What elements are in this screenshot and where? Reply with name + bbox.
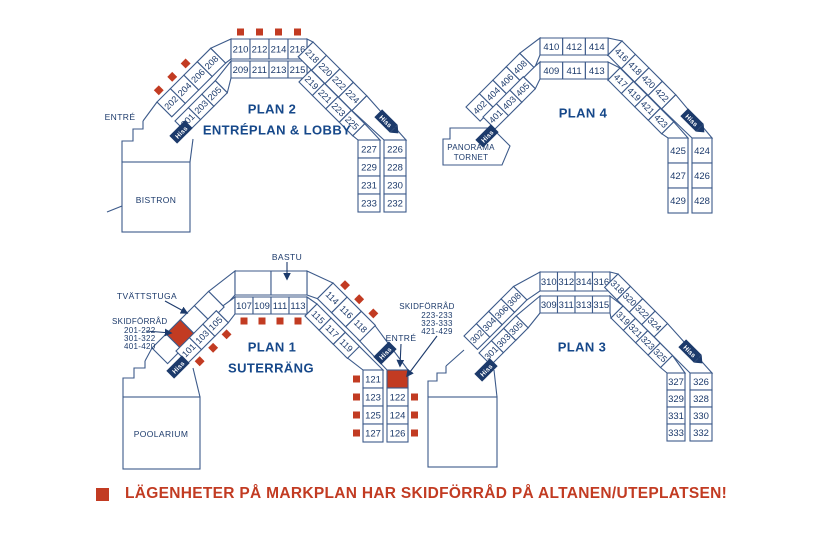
wall-line xyxy=(446,350,464,366)
plan4-group: 4104124144094114134024044064084014034054… xyxy=(443,38,712,213)
panorama-label: TORNET xyxy=(454,153,489,162)
ski-storage-marker xyxy=(340,280,350,290)
unit-number: 232 xyxy=(387,198,403,209)
unit-number: 333 xyxy=(668,428,684,439)
ski-storage-marker xyxy=(411,430,418,437)
unit-number: 409 xyxy=(543,66,559,77)
unit-number: 429 xyxy=(670,196,686,207)
ski-storage-marker xyxy=(154,85,164,95)
ski-storage-marker xyxy=(241,318,248,325)
unit-number: 230 xyxy=(387,180,403,191)
unit-number: 424 xyxy=(694,146,710,157)
plan1-title: PLAN 1 xyxy=(248,340,297,355)
plan1-group: POOLARIUM1071091111131011031051141161181… xyxy=(112,252,455,469)
unit-number: 215 xyxy=(290,65,306,76)
wall-line xyxy=(193,368,200,397)
unit-number: 411 xyxy=(566,66,581,77)
wall-line xyxy=(428,366,446,397)
unit-number: 414 xyxy=(589,42,605,53)
plan2-title: PLAN 2 xyxy=(248,102,297,117)
label-arrow xyxy=(165,301,187,313)
unit-number: 313 xyxy=(576,300,592,311)
unit-number: 125 xyxy=(365,410,381,421)
unit-number: 111 xyxy=(273,301,287,312)
plan2-entrance-label: ENTRÉ xyxy=(105,112,136,122)
unit-number: 113 xyxy=(290,301,305,312)
unit-number: 311 xyxy=(559,300,574,311)
unit-number: 328 xyxy=(693,394,709,405)
ski-storage-marker xyxy=(277,318,284,325)
panorama-label: PANORAMA xyxy=(447,143,495,152)
unit-number: 312 xyxy=(558,277,574,288)
unit-number: 413 xyxy=(589,66,605,77)
unit-number: 126 xyxy=(390,428,406,439)
plan2-subtitle: ENTRÉPLAN & LOBBY xyxy=(203,123,351,138)
unit-number: 310 xyxy=(541,277,557,288)
unit-number: 332 xyxy=(693,428,709,439)
ski-storage-marker xyxy=(411,412,418,419)
bastu-label: BASTU xyxy=(272,252,302,262)
unit-number: 127 xyxy=(365,428,381,439)
ski-storage-marker xyxy=(368,309,378,319)
unit-number: 410 xyxy=(543,42,559,53)
plan1-subtitle: SUTERRÄNG xyxy=(228,361,314,376)
plan3-group: 3103123143163093113133153023043063083013… xyxy=(428,272,712,467)
ski-storage-marker xyxy=(275,29,282,36)
wall-line xyxy=(122,121,143,162)
ski-storage-right-label: SKIDFÖRRÅD xyxy=(399,302,454,311)
unit-number: 231 xyxy=(361,180,377,191)
unit-number: 123 xyxy=(365,392,381,403)
unit-number: 210 xyxy=(233,44,249,55)
unit-number: 124 xyxy=(390,410,406,421)
ski-storage-marker xyxy=(237,29,244,36)
ski-storage-marker xyxy=(167,72,177,82)
unit-number: 228 xyxy=(387,162,403,173)
ski-storage-marker xyxy=(195,356,205,366)
unit-number: 213 xyxy=(271,65,287,76)
ski-storage-marker xyxy=(353,412,360,419)
unit-number: 226 xyxy=(387,144,403,155)
unit-number: 233 xyxy=(361,198,377,209)
wall-line xyxy=(190,139,193,162)
unit-number: 109 xyxy=(254,301,270,312)
plan4-title: PLAN 4 xyxy=(559,106,608,121)
room-cell xyxy=(271,271,307,295)
legend: LÄGENHETER PÅ MARKPLAN HAR SKIDFÖRRÅD PÅ… xyxy=(96,485,727,503)
unit-number: 326 xyxy=(693,377,709,388)
room-cell xyxy=(387,370,408,388)
unit-number: 107 xyxy=(236,301,252,312)
ski-storage-marker xyxy=(353,430,360,437)
plan3-title: PLAN 3 xyxy=(558,340,607,355)
unit-number: 412 xyxy=(566,42,582,53)
unit-number: 427 xyxy=(670,171,686,182)
unit-number: 327 xyxy=(668,377,684,388)
unit-number: 227 xyxy=(361,144,377,155)
poolarium-label: POOLARIUM xyxy=(134,429,189,439)
wall-line xyxy=(107,206,122,212)
unit-number: 122 xyxy=(390,392,406,403)
wall-line xyxy=(143,102,157,121)
ski-storage-marker xyxy=(208,343,218,353)
unit-number: 330 xyxy=(693,411,709,422)
unit-number: 329 xyxy=(668,394,684,405)
room-cell xyxy=(235,271,271,295)
unit-number: 331 xyxy=(668,411,684,422)
ski-storage-marker xyxy=(181,59,191,69)
bistron-label: BISTRON xyxy=(136,195,177,205)
wall-line xyxy=(123,361,145,397)
unit-number: 121 xyxy=(365,374,381,385)
laundry-label: TVÄTTSTUGA xyxy=(117,291,177,301)
floorplan-page: BISTRON210212214216209211213215202204206… xyxy=(0,0,833,555)
unit-number: 212 xyxy=(252,44,268,55)
ski-storage-left-label: SKIDFÖRRÅD xyxy=(112,317,167,326)
ski-storage-marker xyxy=(353,394,360,401)
ski-storage-marker xyxy=(294,29,301,36)
unit-number: 209 xyxy=(233,65,249,76)
unit-number: 426 xyxy=(694,171,710,182)
plan2-group: BISTRON210212214216209211213215202204206… xyxy=(105,29,406,233)
ski-storage-marker xyxy=(411,394,418,401)
ski-storage-marker xyxy=(295,318,302,325)
unit-number: 425 xyxy=(670,146,686,157)
wall-line xyxy=(494,370,497,397)
unit-number: 314 xyxy=(576,277,592,288)
ski-storage-marker xyxy=(353,376,360,383)
legend-red-square xyxy=(96,488,109,501)
legend-text: LÄGENHETER PÅ MARKPLAN HAR SKIDFÖRRÅD PÅ… xyxy=(125,485,727,503)
ski-storage-marker xyxy=(256,29,263,36)
ski-storage-right-label: 421-429 xyxy=(421,327,453,336)
plan1-entrance-label: ENTRÉ xyxy=(386,333,417,343)
unit-number: 309 xyxy=(541,300,557,311)
annex-building-outline xyxy=(428,397,497,467)
ski-storage-marker xyxy=(259,318,266,325)
unit-number: 315 xyxy=(593,300,609,311)
ski-storage-marker xyxy=(222,329,232,339)
ski-storage-marker xyxy=(354,294,364,304)
unit-number: 211 xyxy=(252,65,267,76)
unit-number: 214 xyxy=(271,44,287,55)
unit-number: 229 xyxy=(361,162,377,173)
floorplan-svg: BISTRON210212214216209211213215202204206… xyxy=(0,0,833,478)
unit-number: 428 xyxy=(694,196,710,207)
ski-storage-left-label: 401-420 xyxy=(124,342,156,351)
